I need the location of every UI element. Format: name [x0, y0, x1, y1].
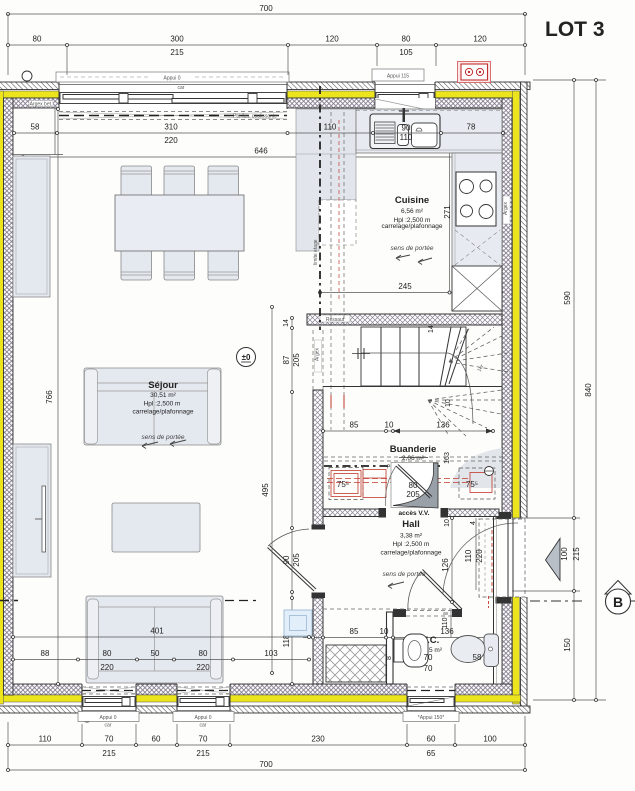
svg-text:215: 215	[196, 749, 210, 758]
svg-text:120: 120	[473, 35, 487, 44]
svg-text:215: 215	[572, 547, 581, 561]
svg-text:6,56 m²: 6,56 m²	[401, 208, 424, 215]
svg-text:300: 300	[170, 35, 184, 44]
svg-text:carrelage/plafonnage: carrelage/plafonnage	[381, 223, 442, 230]
svg-text:110: 110	[442, 617, 449, 628]
svg-text:sens de portée: sens de portée	[390, 245, 433, 252]
svg-text:2,06 m²: 2,06 m²	[402, 455, 425, 462]
svg-text:110: 110	[324, 123, 337, 132]
svg-text:sens de portée: sens de portée	[141, 434, 184, 441]
svg-text:Appui 0: Appui 0	[164, 76, 181, 82]
svg-text:limite etage: limite etage	[313, 239, 319, 265]
svg-text:110: 110	[39, 735, 52, 744]
svg-text:646: 646	[254, 147, 268, 156]
svg-text:840: 840	[584, 383, 593, 397]
svg-text:accès V.V.: accès V.V.	[399, 510, 430, 517]
svg-text:700: 700	[259, 760, 273, 769]
svg-text:Argex: Argex	[315, 347, 321, 361]
svg-text:Hall: Hall	[402, 519, 419, 530]
svg-text:85: 85	[350, 421, 359, 430]
svg-text:10: 10	[444, 519, 451, 527]
svg-text:14: 14	[283, 319, 290, 327]
svg-text:car: car	[105, 723, 112, 729]
svg-text:carrelage/plafonnage: carrelage/plafonnage	[380, 550, 441, 557]
svg-text:58: 58	[31, 123, 40, 132]
svg-text:90: 90	[282, 555, 291, 564]
svg-text:Pte-fen. coulissante: Pte-fen. coulissante	[233, 114, 277, 120]
svg-text:88: 88	[41, 649, 50, 658]
svg-text:B: B	[613, 594, 623, 610]
svg-text:av: av	[443, 611, 449, 617]
svg-text:10: 10	[445, 399, 452, 407]
svg-text:220: 220	[475, 549, 484, 563]
svg-text:80: 80	[33, 35, 42, 44]
svg-text:*Appui 150*: *Appui 150*	[418, 715, 444, 721]
svg-text:car: car	[200, 723, 207, 729]
svg-text:205: 205	[292, 353, 301, 367]
svg-text:310: 310	[164, 123, 178, 132]
svg-text:Appui 0: Appui 0	[100, 715, 117, 721]
svg-text:110: 110	[464, 549, 473, 562]
svg-text:85: 85	[350, 627, 359, 636]
svg-text:58: 58	[473, 653, 482, 662]
svg-text:700: 700	[259, 4, 273, 13]
svg-text:495: 495	[261, 483, 270, 497]
svg-text:75⁵: 75⁵	[466, 480, 478, 489]
svg-text:70: 70	[105, 735, 114, 744]
svg-text:8: 8	[386, 656, 393, 660]
svg-text:carrelage/plafonnage: carrelage/plafonnage	[132, 409, 193, 416]
svg-text:105: 105	[399, 48, 413, 57]
svg-text:120: 120	[325, 35, 339, 44]
svg-text:65: 65	[427, 749, 436, 758]
svg-text:LOT 3: LOT 3	[545, 18, 605, 41]
svg-text:80: 80	[402, 35, 411, 44]
svg-text:205: 205	[406, 490, 420, 499]
svg-text:70: 70	[424, 653, 433, 662]
svg-text:Buanderie: Buanderie	[390, 444, 436, 455]
svg-text:14: 14	[428, 325, 435, 333]
svg-text:Ressaut: Ressaut	[326, 317, 345, 323]
svg-text:10: 10	[380, 627, 389, 636]
svg-text:70: 70	[199, 735, 208, 744]
svg-text:220: 220	[100, 663, 114, 672]
svg-text:126: 126	[441, 558, 450, 572]
svg-text:590: 590	[563, 291, 572, 305]
svg-text:50: 50	[151, 649, 160, 658]
svg-text:220: 220	[164, 136, 178, 145]
svg-text:Argex: Argex	[503, 201, 509, 215]
svg-text:Appui 0: Appui 0	[195, 715, 212, 721]
svg-text:Cuisine: Cuisine	[395, 195, 429, 206]
svg-text:car: car	[178, 85, 185, 91]
svg-text:215: 215	[102, 749, 116, 758]
svg-text:136: 136	[436, 421, 450, 430]
svg-text:Séjour: Séjour	[148, 380, 178, 391]
svg-text:150: 150	[563, 638, 572, 652]
svg-text:±0: ±0	[242, 353, 251, 362]
svg-text:103: 103	[264, 649, 278, 658]
svg-text:163: 163	[444, 452, 451, 464]
svg-text:90: 90	[402, 124, 411, 133]
svg-text:Hpl :2,500 m: Hpl :2,500 m	[393, 541, 430, 548]
svg-text:60: 60	[427, 735, 436, 744]
svg-text:766: 766	[45, 390, 54, 404]
svg-text:4: 4	[470, 521, 477, 525]
svg-text:80: 80	[103, 649, 112, 658]
svg-text:401: 401	[150, 627, 164, 636]
svg-text:70: 70	[424, 664, 433, 673]
svg-text:215: 215	[170, 48, 184, 57]
svg-text:Argex bet.: Argex bet.	[30, 101, 53, 107]
svg-text:Hpl :2,500 m: Hpl :2,500 m	[144, 401, 181, 408]
svg-text:80: 80	[409, 481, 418, 490]
svg-text:3,38 m²: 3,38 m²	[400, 533, 423, 540]
svg-text:75⁵: 75⁵	[337, 480, 349, 489]
svg-text:30,51 m²: 30,51 m²	[150, 392, 176, 399]
svg-text:245: 245	[398, 282, 412, 291]
svg-text:230: 230	[311, 735, 325, 744]
svg-text:60: 60	[152, 735, 161, 744]
svg-text:Appui 115: Appui 115	[387, 74, 409, 80]
svg-text:100: 100	[483, 735, 497, 744]
svg-text:100: 100	[560, 547, 569, 561]
svg-text:271: 271	[443, 205, 452, 219]
svg-text:78: 78	[467, 123, 476, 132]
svg-text:10: 10	[385, 421, 394, 430]
svg-text:sens de portée: sens de portée	[382, 571, 425, 578]
svg-text:205: 205	[292, 553, 301, 567]
svg-text:80: 80	[199, 649, 208, 658]
svg-text:87: 87	[282, 355, 291, 364]
svg-text:110: 110	[400, 133, 413, 142]
svg-text:220: 220	[196, 663, 210, 672]
